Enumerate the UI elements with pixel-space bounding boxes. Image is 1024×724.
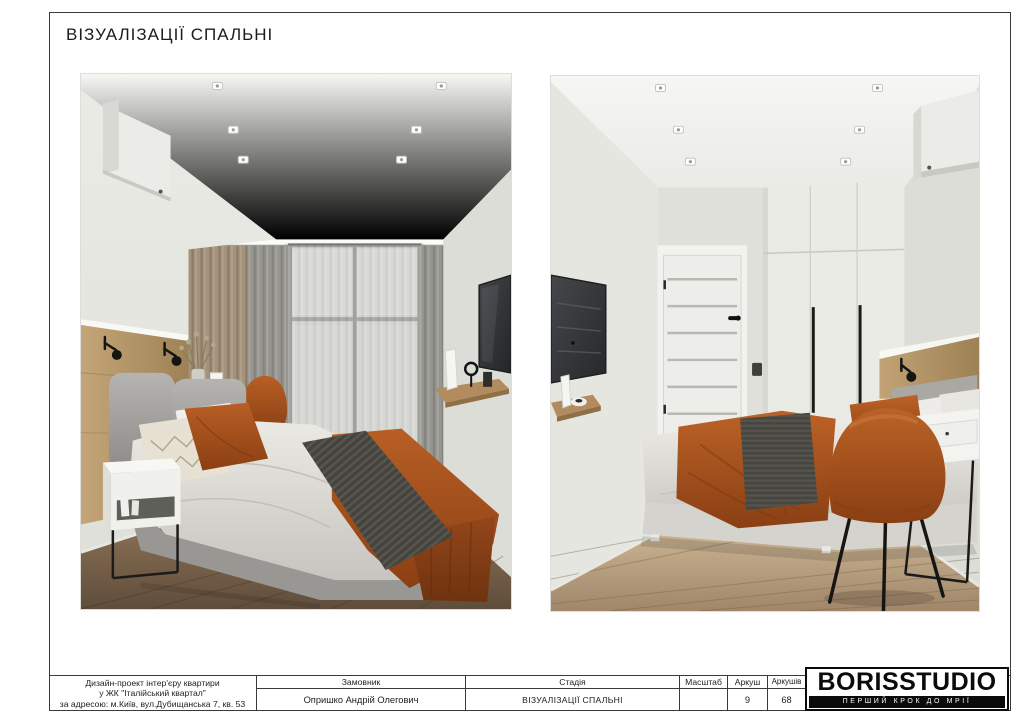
sheet-label: Аркуш — [728, 676, 767, 689]
bedroom-render-left-graphic — [81, 74, 511, 609]
studio-logo-name: BORISSTUDIO — [809, 669, 1005, 696]
scale-label: Масштаб — [680, 676, 727, 689]
bedroom-render-right-graphic — [551, 76, 979, 611]
stage-label: Стадія — [466, 676, 679, 689]
project-line-2: у ЖК "Італійський квартал" — [49, 688, 256, 699]
scale-cell: Масштаб — [680, 676, 728, 711]
game-console — [561, 375, 571, 408]
customer-value: Опришко Андрій Олегович — [257, 689, 465, 711]
project-line-1: Дизайн-проект інтер'єру квартири — [49, 678, 256, 689]
tv-screen — [479, 275, 511, 373]
design-sheet-page: ВІЗУАЛІЗАЦІЇ СПАЛЬНІ — [0, 0, 1024, 724]
studio-logo-tagline: ПЕРШИЙ КРОК ДО МРІЇ — [809, 696, 1005, 708]
sheets-total-cell: Аркушів 68 — [768, 676, 806, 711]
wardrobe-handle — [812, 307, 815, 413]
photo-frame — [483, 372, 492, 387]
sheets-value: 68 — [768, 689, 805, 711]
wardrobe-handle — [859, 305, 862, 417]
light-switch — [752, 363, 762, 376]
bedroom-render-right — [550, 75, 980, 612]
customer-label: Замовник — [257, 676, 465, 689]
studio-logo: BORISSTUDIO ПЕРШИЙ КРОК ДО МРІЇ — [805, 667, 1009, 711]
stage-value: ВІЗУАЛІЗАЦІЇ СПАЛЬНІ — [466, 689, 679, 711]
sheets-label: Аркушів — [768, 676, 805, 689]
project-line-3: за адресою: м.Київ, вул.Дубищанська 7, к… — [49, 699, 256, 710]
knit-runner — [740, 413, 818, 511]
stage-cell: Стадія ВІЗУАЛІЗАЦІЇ СПАЛЬНІ — [466, 676, 680, 711]
door — [658, 245, 748, 446]
tv-screen — [551, 275, 606, 383]
game-console — [445, 349, 457, 390]
sheet-number-cell: Аркуш 9 — [728, 676, 768, 711]
sheet-value: 9 — [728, 689, 767, 711]
customer-cell: Замовник Опришко Андрій Олегович — [257, 676, 466, 711]
scale-value — [680, 689, 727, 711]
page-title: ВІЗУАЛІЗАЦІЇ СПАЛЬНІ — [66, 25, 273, 45]
project-info-cell: Дизайн-проект інтер'єру квартири у ЖК "І… — [49, 676, 257, 711]
bedroom-render-left — [80, 73, 512, 610]
